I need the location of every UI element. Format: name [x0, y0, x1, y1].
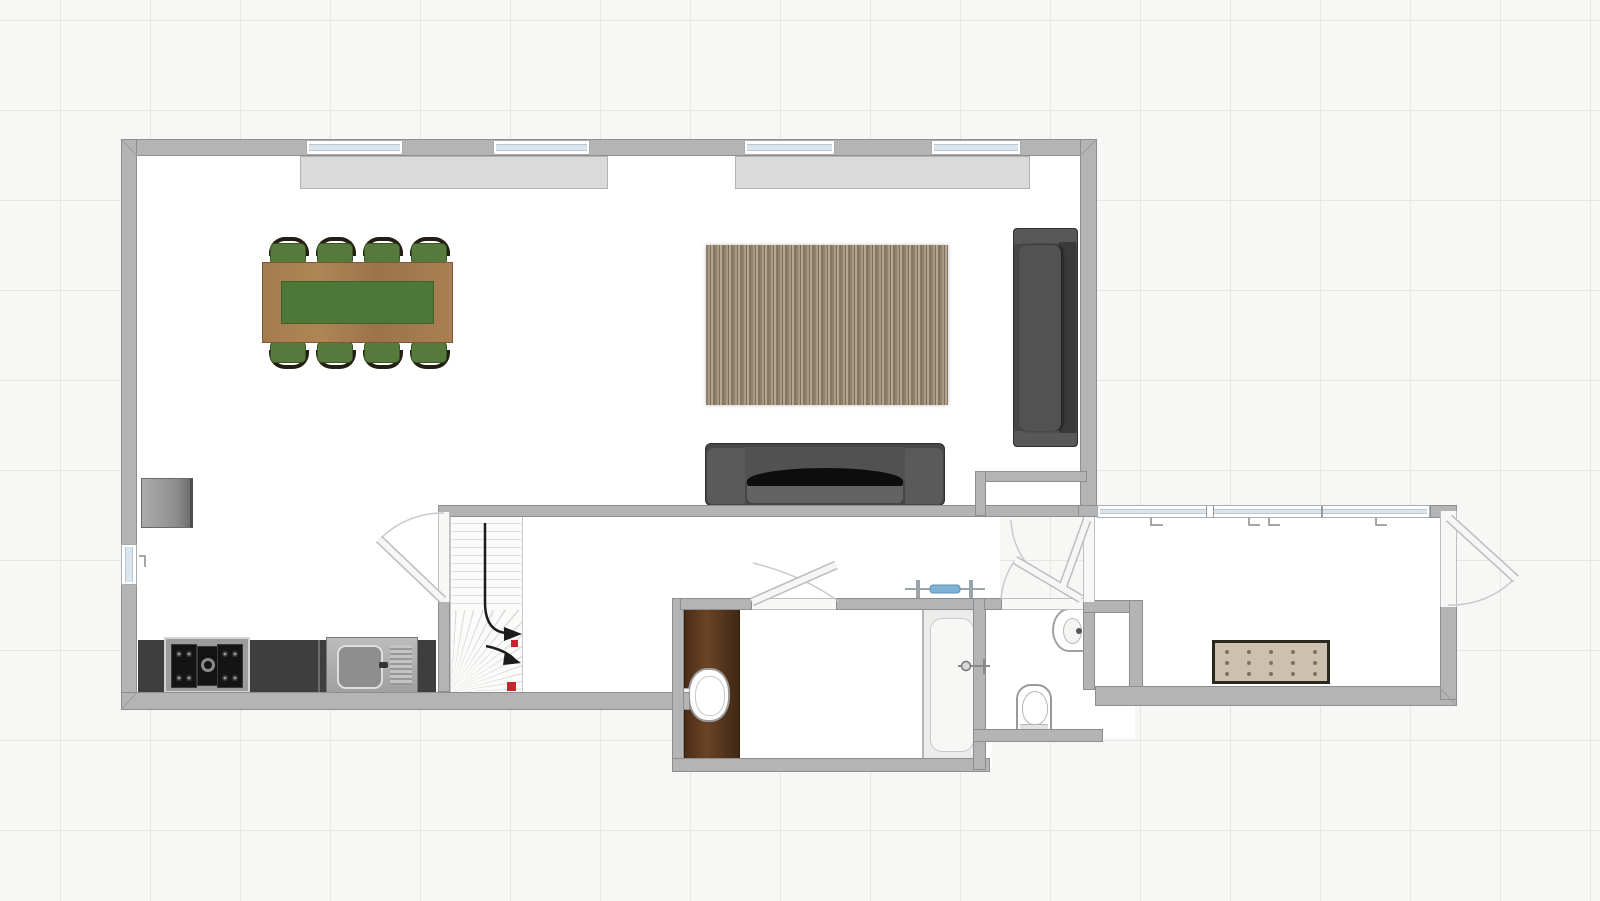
dining-chair[interactable] — [407, 341, 449, 369]
bench-tufting — [1225, 650, 1229, 654]
bathtub-basin — [930, 618, 974, 752]
table-runner — [281, 281, 434, 324]
doorway-entry — [1440, 511, 1457, 607]
doorway-kitchen-stairhall — [438, 512, 450, 602]
sofa-back — [1059, 242, 1076, 433]
window-top-1[interactable] — [306, 140, 403, 155]
chair-seat — [411, 341, 447, 363]
wall-bathroom-top-b[interactable] — [836, 598, 977, 610]
dining-chair[interactable] — [360, 341, 402, 369]
staircase-upper-flight[interactable] — [450, 516, 523, 610]
staircase-winder-flight[interactable] — [450, 610, 523, 692]
kitchen-sink[interactable] — [326, 637, 418, 693]
wall-bath-wc-divider[interactable] — [973, 598, 986, 770]
area-rug[interactable] — [706, 245, 948, 405]
burner-grate — [217, 644, 243, 688]
tufted-bench[interactable] — [1212, 640, 1330, 684]
wall-hall-bottom[interactable] — [1095, 686, 1457, 706]
window-top-2[interactable] — [493, 140, 590, 155]
wall-bathroom-bottom[interactable] — [672, 758, 990, 772]
floor-plan-canvas — [0, 0, 1600, 901]
wall-wc-top[interactable] — [984, 598, 1002, 610]
wall-wc-right[interactable] — [1083, 600, 1095, 690]
radiator-panel-left[interactable] — [300, 156, 608, 189]
basin-faucet — [1076, 628, 1082, 634]
wall-corridor-top[interactable] — [438, 505, 1087, 517]
loveseat[interactable] — [705, 443, 945, 506]
sink-bowl — [337, 645, 383, 689]
sofa-seat — [1019, 245, 1061, 431]
window-left-wall[interactable] — [121, 544, 137, 585]
window-glass — [1100, 509, 1427, 514]
floor-corridor — [680, 510, 1000, 610]
sofa-back — [747, 486, 903, 503]
wall-closet-right[interactable] — [1129, 600, 1143, 690]
bathtub[interactable] — [922, 608, 980, 760]
wall-right-living[interactable] — [1080, 139, 1097, 517]
wall-wc-bottom[interactable] — [973, 729, 1103, 742]
chair-seat — [270, 341, 306, 363]
chair-seat — [364, 341, 400, 363]
wall-hall-right-lower[interactable] — [1440, 605, 1457, 700]
toilet-bowl — [1022, 691, 1048, 725]
doorway-bathroom — [752, 598, 836, 610]
window-top-3[interactable] — [744, 140, 835, 155]
sink-faucet — [379, 662, 388, 668]
window-glass — [934, 144, 1018, 151]
counter-seam — [318, 640, 320, 692]
wall-bathroom-left[interactable] — [672, 598, 684, 770]
window-glass — [309, 144, 400, 151]
burner-grate — [171, 644, 197, 688]
wall-niche-top[interactable] — [975, 471, 1087, 482]
sofa-arm — [905, 448, 943, 504]
chair-seat — [317, 341, 353, 363]
dining-chair[interactable] — [407, 237, 449, 265]
refrigerator[interactable] — [141, 478, 193, 528]
dining-chair[interactable] — [266, 237, 308, 265]
wall-bottom-left[interactable] — [121, 692, 690, 710]
vanity-sink[interactable] — [688, 668, 730, 722]
dining-chair[interactable] — [313, 237, 355, 265]
window-glass — [496, 144, 587, 151]
wall-bathroom-top-a[interactable] — [680, 598, 752, 610]
window-band-hallway[interactable] — [1097, 505, 1430, 518]
window-glass — [747, 144, 832, 151]
sink-basin — [695, 676, 725, 716]
dining-chair[interactable] — [266, 341, 308, 369]
dining-chair[interactable] — [360, 237, 402, 265]
window-glass — [125, 547, 133, 582]
gas-cooktop[interactable] — [164, 637, 250, 693]
dining-table[interactable] — [262, 262, 453, 343]
sofa-arm — [1014, 431, 1077, 446]
toilet[interactable] — [1016, 684, 1052, 734]
radiator-panel-right[interactable] — [735, 156, 1030, 189]
window-top-4[interactable] — [931, 140, 1021, 155]
sofa-right[interactable] — [1013, 228, 1078, 447]
doorway-corridor-hallway — [1083, 517, 1095, 602]
wall-niche-left[interactable] — [975, 471, 986, 516]
sink-drainer — [390, 645, 412, 685]
wall-stair-left[interactable] — [438, 600, 450, 692]
doorway-wc — [1002, 598, 1083, 610]
window-mullion — [1321, 506, 1323, 517]
sofa-arm — [707, 448, 745, 504]
dining-chair[interactable] — [313, 341, 355, 369]
wall-left[interactable] — [121, 139, 137, 710]
window-mullion — [1206, 506, 1214, 517]
corner-hand-basin[interactable] — [1052, 608, 1086, 652]
